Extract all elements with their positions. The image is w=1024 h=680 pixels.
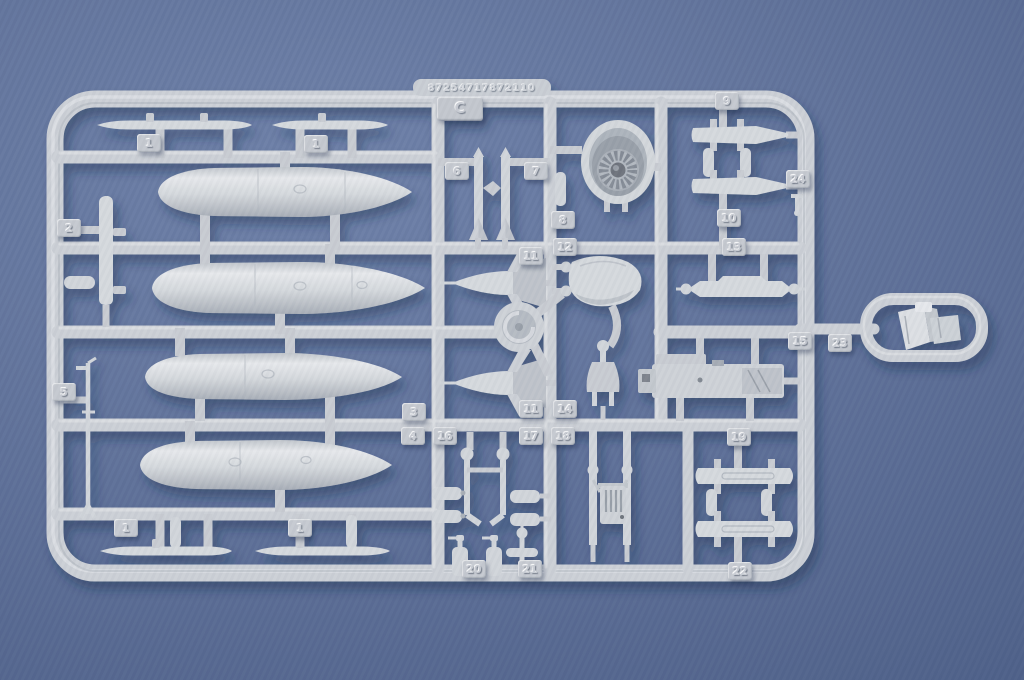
part-tab-15: 15 [788,332,812,350]
small-gear-cluster [432,432,551,526]
part-tab-1-top-right: 1 [304,135,328,153]
drop-tank-half-1 [158,152,412,250]
part-tab-11-upper: 11 [519,247,543,265]
part-tab-13: 13 [722,238,746,256]
part-tab-14: 14 [553,400,577,418]
part-tab-23: 23 [828,334,852,352]
runner-letter-tab: C [437,97,483,120]
drop-tank-half-3 [145,328,402,421]
mold-code-text: 87254717872110 [416,80,548,96]
sprue-photo: 87254717872110 C 1 1 2 5 6 7 8 9 24 10 1… [0,0,1024,680]
part-tab-1-bottom-right: 1 [288,519,312,537]
part-tab-2: 2 [57,219,81,237]
part-tab-24: 24 [786,170,810,188]
part-tab-4: 4 [401,427,425,445]
part-tab-5: 5 [52,383,76,401]
canopy-fairing-part [552,256,642,346]
part-tab-7: 7 [524,162,548,180]
part-tab-18: 18 [551,427,575,445]
small-valve-figure-part [587,340,620,420]
part-tab-8: 8 [551,211,575,229]
part-tab-3: 3 [402,403,426,421]
landing-gear-struts [588,430,633,562]
engine-exhaust-nozzle [550,120,661,212]
part-tab-19: 19 [727,428,751,446]
part-tab-9: 9 [715,92,739,110]
drop-tank-half-2 [152,244,425,334]
grooved-ladder-plate [598,483,628,524]
drop-tank-half-4 [140,421,392,512]
part-tab-17: 17 [519,427,543,445]
small-stub-part-8 [555,172,566,206]
part-tab-22: 22 [728,562,752,580]
part-tab-1-bottom-left: 1 [114,519,138,537]
part-tab-12: 12 [553,238,577,256]
part-tab-21: 21 [518,560,542,578]
ejection-seat-part [898,302,961,350]
part-tab-1-top-left: 1 [137,134,161,152]
sprue-drawing [0,0,1024,680]
sprue-rails [58,103,800,569]
part-tab-10: 10 [717,209,741,227]
part-tab-20: 20 [462,560,486,578]
part-tab-11-lower: 11 [519,400,543,418]
part-tab-6: 6 [445,162,469,180]
antenna-mast-part [63,358,96,518]
pylon-pair-bottom-right [696,430,794,566]
small-bomb-part [64,276,95,289]
part-tab-16: 16 [433,427,457,445]
fin-blade-part [63,196,126,327]
launch-rail-part [676,254,805,297]
